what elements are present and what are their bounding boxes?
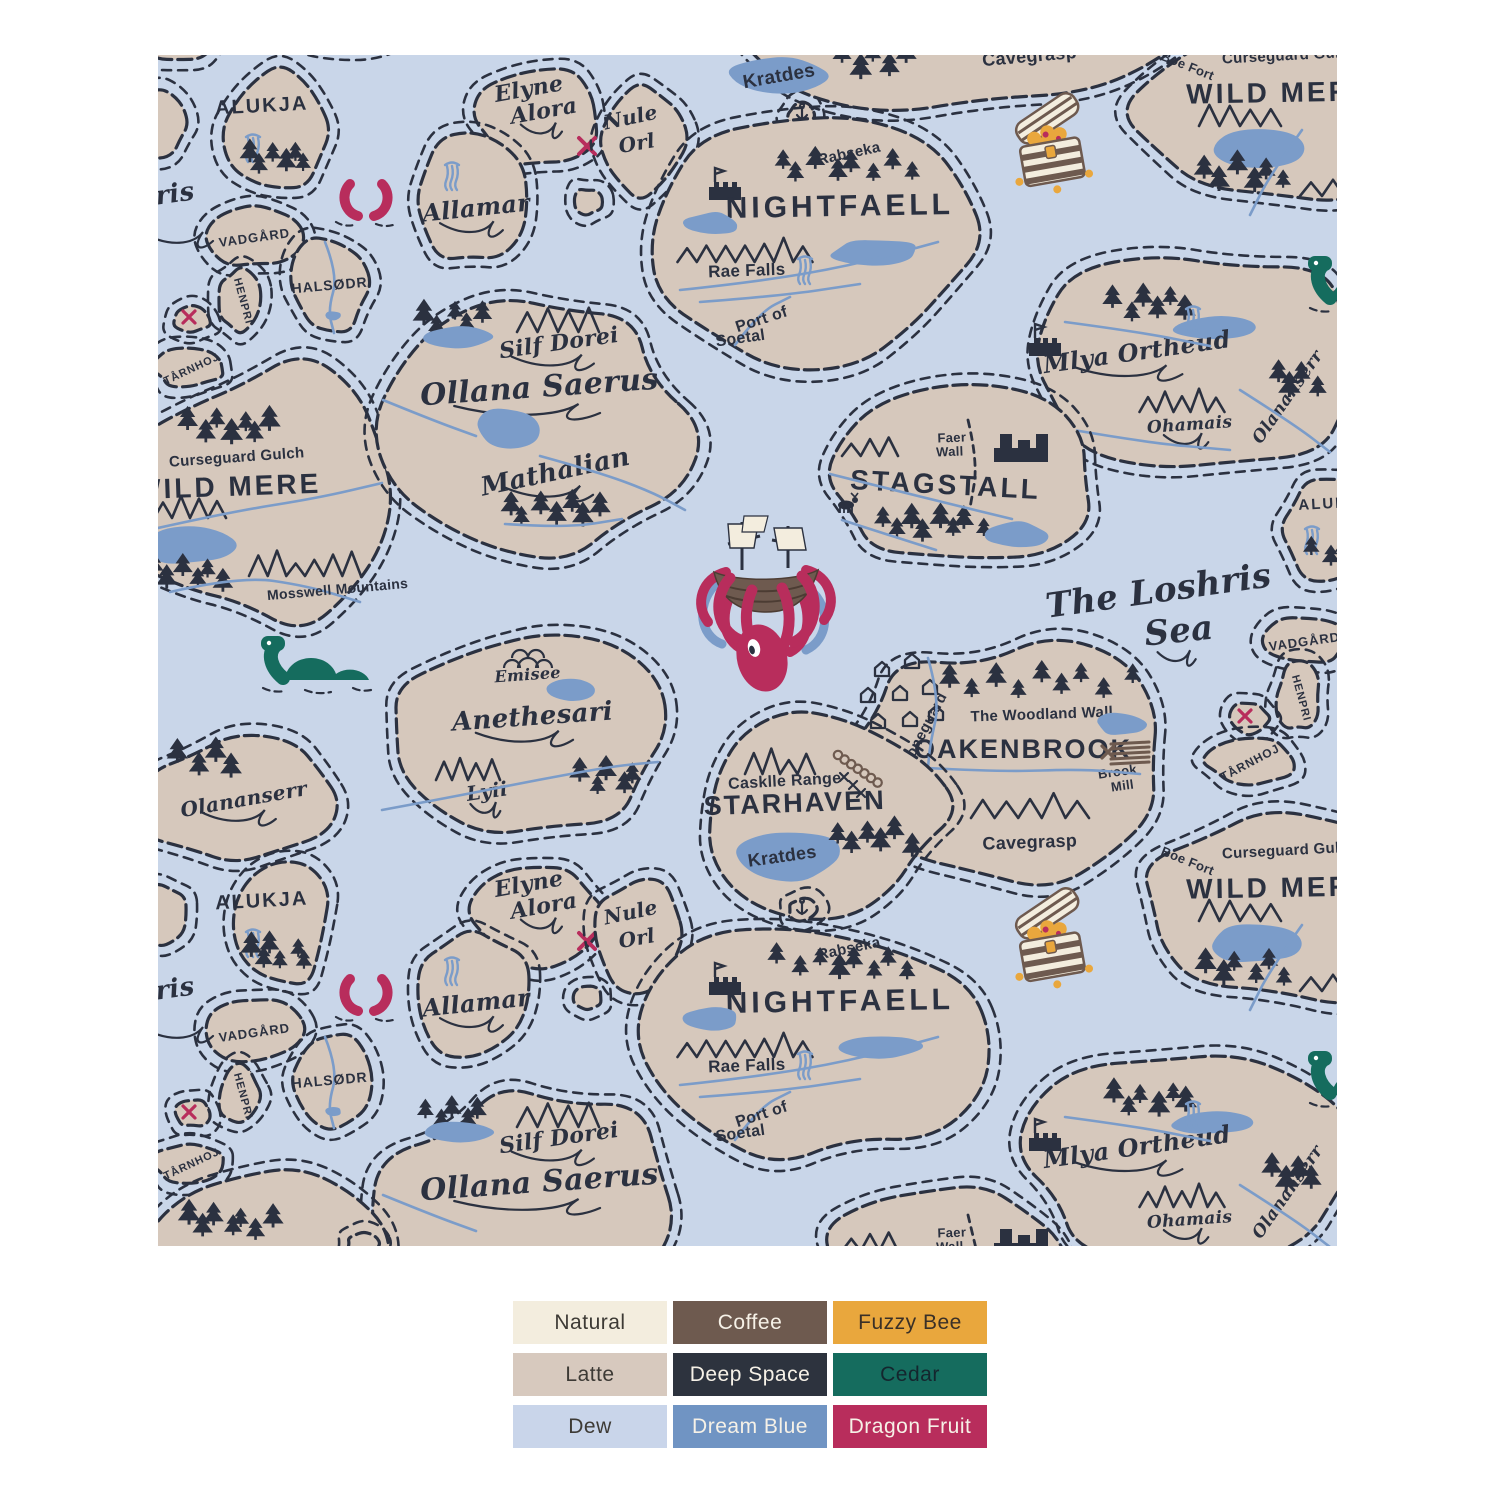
place-name-label: Sea [1142, 608, 1215, 655]
color-legend: Natural Coffee Fuzzy Bee Latte Deep Spac… [513, 1301, 987, 1448]
mill-icon [1111, 742, 1149, 744]
swatch-label: Fuzzy Bee [858, 1311, 962, 1335]
island-land [574, 190, 602, 215]
swatch-label: Latte [565, 1363, 614, 1387]
color-swatch-coffee: Coffee [673, 1301, 827, 1344]
sea-monster-eye-icon [267, 641, 271, 645]
place-name-label: OAKENBROOK [914, 734, 1132, 764]
sea-monster-icon [1308, 256, 1332, 271]
fabric-swatch-page: ALUKJAElyneAloraNuleOrlKratdesCavegraspR… [0, 0, 1500, 1500]
place-name-label: ris [158, 971, 196, 1006]
sea-monster-eye-icon [1314, 1056, 1318, 1060]
place-name-label: Wall [936, 444, 964, 460]
mill-icon [1111, 752, 1149, 754]
color-swatch-dream-blue: Dream Blue [673, 1405, 827, 1448]
color-swatch-cedar: Cedar [833, 1353, 987, 1396]
color-swatch-fuzzy-bee: Fuzzy Bee [833, 1301, 987, 1344]
lake [1214, 129, 1305, 168]
swatch-label: Dream Blue [692, 1415, 808, 1439]
color-swatch-natural: Natural [513, 1301, 667, 1344]
place-name-label: NIGHTFAELL [725, 983, 954, 1020]
swatch-label: Dragon Fruit [849, 1415, 972, 1439]
place-name-label: Wall [936, 1239, 964, 1246]
mill-icon [1111, 757, 1149, 759]
place-name-label: ALUKJA [1298, 493, 1337, 514]
fantasy-map-print: ALUKJAElyneAloraNuleOrlKratdesCavegraspR… [158, 55, 1337, 1246]
swatch-label: Coffee [718, 1311, 783, 1335]
island-land [175, 1100, 210, 1126]
swatch-label: Dew [568, 1415, 612, 1439]
mill-icon [1111, 747, 1149, 749]
color-swatch-dew: Dew [513, 1405, 667, 1448]
color-swatch-latte: Latte [513, 1353, 667, 1396]
sea-monster-icon [261, 636, 285, 651]
sea-monster-icon [1308, 1051, 1332, 1066]
moose-icon [852, 497, 858, 503]
place-name-label: Mill [1110, 777, 1135, 795]
place-name-label: NIGHTFAELL [725, 188, 954, 225]
color-swatch-dragon-fruit: Dragon Fruit [833, 1405, 987, 1448]
sea-monster-eye-icon [1314, 261, 1318, 265]
island-land [573, 986, 601, 1009]
color-swatch-deep-space: Deep Space [673, 1353, 827, 1396]
place-name-label: Cavegrasp [982, 830, 1077, 853]
place-name-label: STARHAVEN [703, 785, 886, 821]
place-name-label: ris [158, 176, 196, 211]
swatch-label: Cedar [880, 1363, 940, 1387]
map-print-swatch: ALUKJAElyneAloraNuleOrlKratdesCavegraspR… [158, 55, 1337, 1246]
swatch-label: Deep Space [690, 1363, 811, 1387]
swatch-label: Natural [554, 1311, 625, 1335]
